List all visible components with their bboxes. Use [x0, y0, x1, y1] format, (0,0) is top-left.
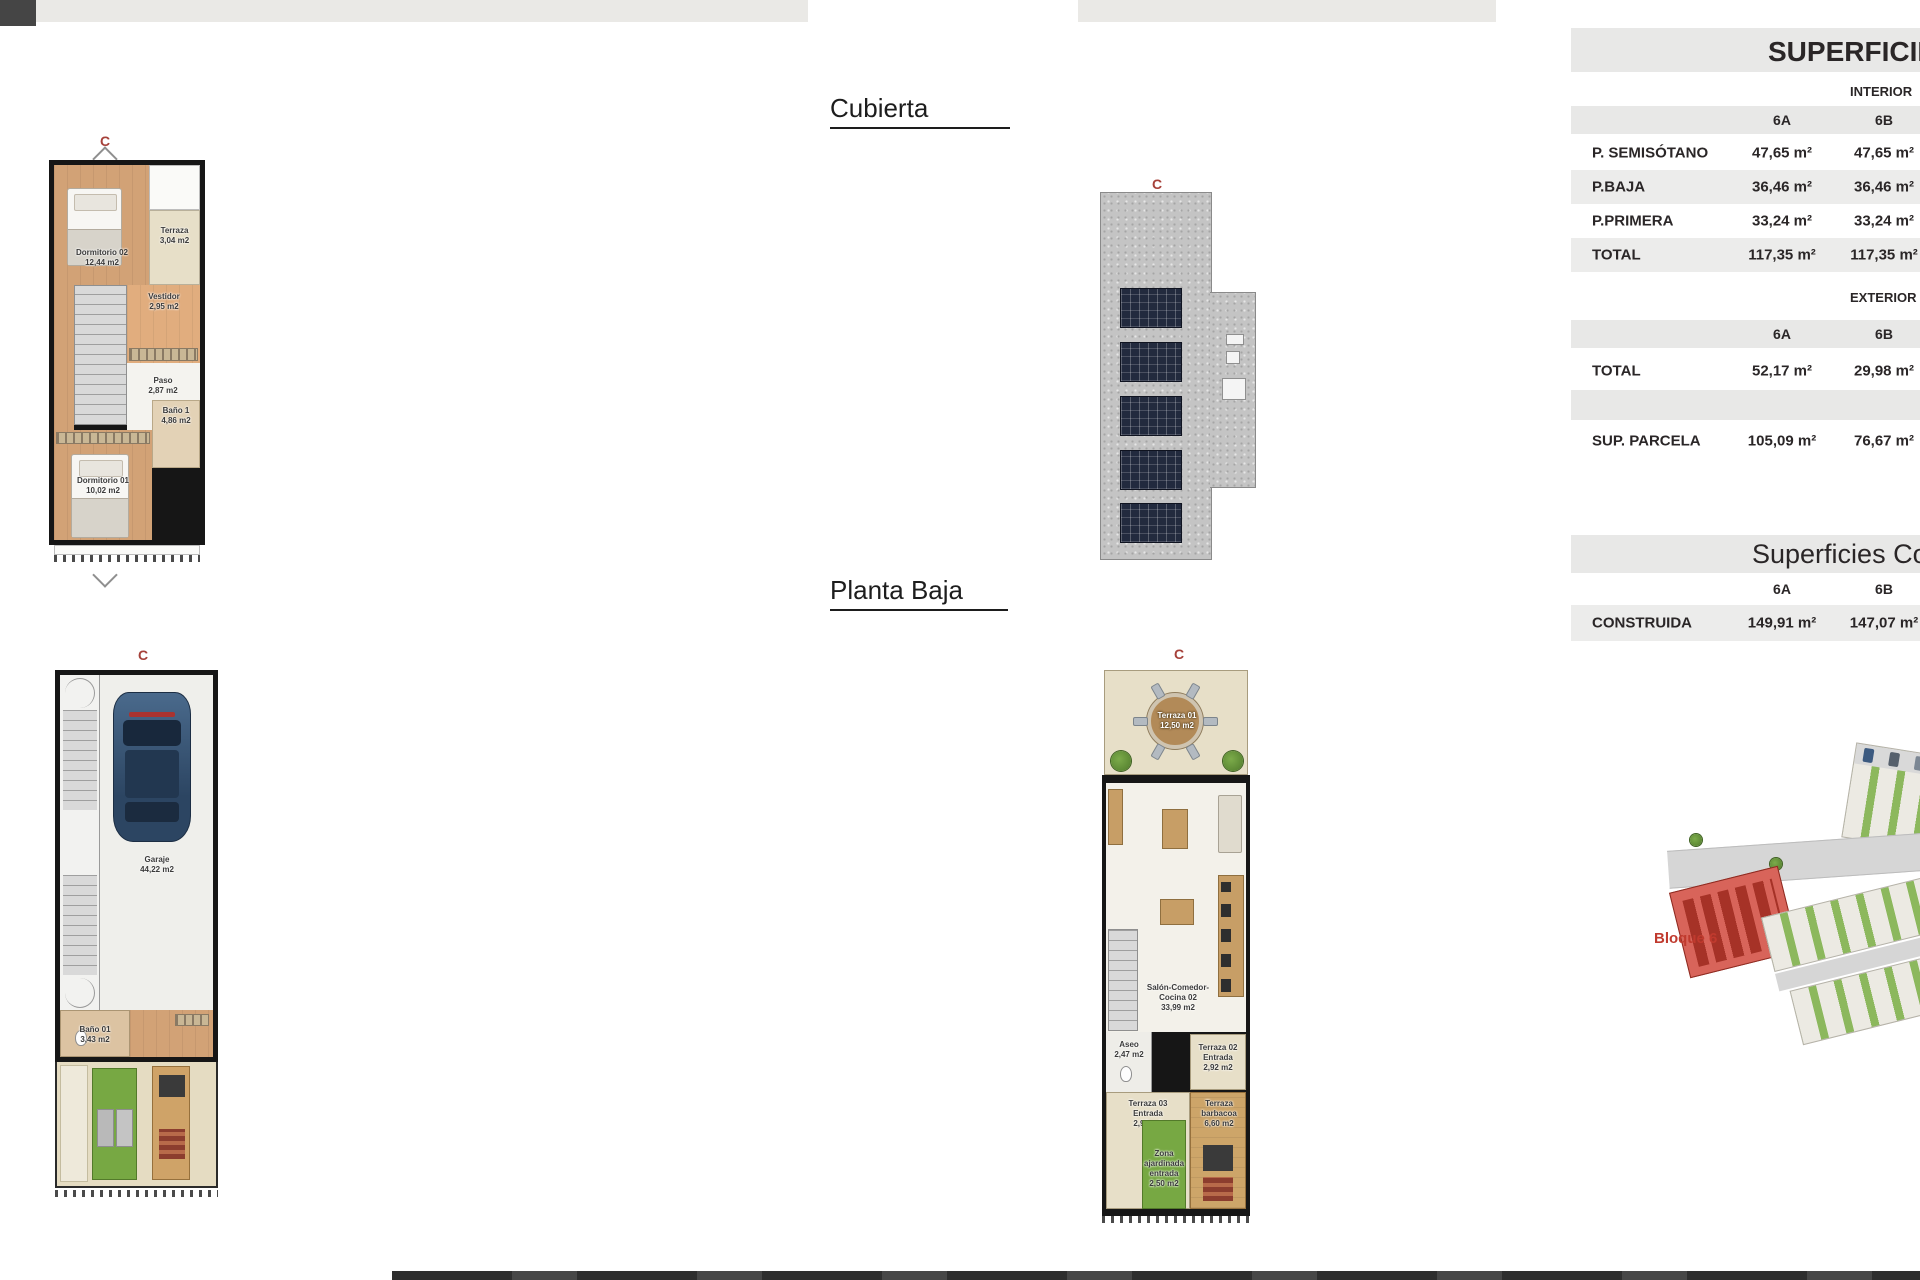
balcony-area [149, 165, 200, 210]
heading-planta-baja-rule [830, 609, 1008, 611]
roof-equipment [1222, 378, 1246, 400]
planter-graphic [1203, 1177, 1233, 1201]
room-name: Terraza 02 Entrada [1193, 1043, 1243, 1063]
column-header-6b: 6B [1875, 112, 1893, 128]
car-graphic [113, 692, 191, 842]
car-windshield [125, 802, 179, 822]
room-name: Zona ajardinada entrada [1144, 1149, 1184, 1179]
spacer-band [1571, 390, 1920, 420]
stairs-graphic [1108, 929, 1138, 1031]
superficies-title-band: SUPERFICIES [1571, 28, 1920, 72]
column-header-6a: 6A [1773, 326, 1791, 342]
construidas-title: Superficies Co [1752, 539, 1920, 570]
road [1667, 829, 1920, 889]
hatched-edge [55, 1190, 218, 1197]
column-header-6a: 6A [1773, 581, 1791, 597]
room-label: Terraza 01 12,50 m2 [1145, 711, 1209, 731]
room-name: Paso [129, 376, 197, 386]
value-6a: 47,65 m² [1752, 145, 1812, 162]
room-label: Vestidor 2,95 m2 [131, 292, 197, 312]
roof-equipment [1226, 351, 1240, 364]
floorplan-planta-baja: Terraza 01 12,50 m2 Salón-Comedor-Cocina… [1102, 668, 1250, 1223]
room-area: 2,95 m2 [131, 302, 197, 312]
room-area: 33,99 m2 [1140, 1003, 1216, 1013]
chair-graphic [1150, 743, 1165, 760]
bottom-edge-strip [392, 1271, 1920, 1280]
dining-table-graphic [1160, 899, 1194, 925]
room-label: Terraza barbacoa 6,60 m2 [1193, 1099, 1245, 1129]
floor-sliver [54, 285, 74, 430]
row-label: TOTAL [1592, 363, 1641, 380]
table-row: SUP. PARCELA 105,09 m² 76,67 m² [1571, 424, 1920, 458]
room-zona-ajardinada: Zona ajardinada entrada 2,50 m2 [1142, 1120, 1186, 1209]
bed-graphic [71, 454, 129, 538]
chair-graphic [1185, 743, 1200, 760]
value-6b: 76,67 m² [1854, 433, 1914, 450]
grass-patch [92, 1068, 137, 1180]
top-edge-strip-left [0, 0, 808, 22]
room-terraza-barbacoa: Terraza barbacoa 6,60 m2 [1190, 1092, 1246, 1209]
row-label: P. SEMISÓTANO [1592, 145, 1708, 162]
value-6b: 33,24 m² [1854, 213, 1914, 230]
kitchen-counter-graphic [1218, 875, 1244, 997]
heading-cubierta-rule [830, 127, 1010, 129]
plans-sheet-page: Cubierta Planta Baja C Terraza 3,04 m2 D… [0, 0, 1920, 1280]
paver-slab [97, 1109, 114, 1147]
grill-graphic [1203, 1145, 1233, 1171]
room-name: Terraza barbacoa [1193, 1099, 1245, 1119]
stairs-graphic [74, 285, 127, 425]
room-area: 2,92 m2 [1193, 1063, 1243, 1073]
room-area: 6,60 m2 [1193, 1119, 1245, 1129]
interior-section-label: INTERIOR [1850, 84, 1920, 99]
stairs-graphic [63, 875, 97, 975]
room-name: Terraza 01 [1145, 711, 1209, 721]
row-label: P.PRIMERA [1592, 213, 1673, 230]
room-area: 3,43 m2 [63, 1035, 127, 1045]
room-name: Garaje [105, 855, 209, 865]
table-row: P. SEMISÓTANO 47,65 m² 47,65 m² [1571, 136, 1920, 170]
floorplan-semisotano: Garaje 44,22 m2 Baño 01 3,43 m2 [55, 670, 218, 1202]
row-label: SUP. PARCELA [1592, 433, 1701, 450]
column-header-6a: 6A [1773, 112, 1791, 128]
paver-slab [116, 1109, 133, 1147]
stairs-graphic [63, 710, 97, 810]
cabinet-graphic [175, 1014, 209, 1026]
car-graphic [1914, 756, 1920, 771]
siteplan: Bloque 6 [1650, 750, 1920, 1040]
plant-graphic [1111, 751, 1131, 771]
room-name: Baño 01 [63, 1025, 127, 1035]
room-terraza-02: Terraza 02 Entrada 2,92 m2 [1190, 1034, 1246, 1090]
chair-graphic [1150, 682, 1165, 699]
planter-graphic [159, 1129, 185, 1159]
tv-unit-graphic [1108, 789, 1123, 845]
solar-panel [1120, 396, 1182, 436]
room-aseo: Aseo 2,47 m2 [1106, 1032, 1152, 1092]
exterior-section-label: EXTERIOR [1850, 290, 1920, 305]
column-header-6b: 6B [1875, 326, 1893, 342]
room-name: Baño 1 [153, 406, 199, 416]
car-brake-light [129, 712, 175, 717]
room-area: 44,22 m2 [105, 865, 209, 875]
room-label: Paso 2,87 m2 [129, 376, 197, 396]
value-6a: 36,46 m² [1752, 179, 1812, 196]
exterior-header-band: 6A 6B [1571, 320, 1920, 348]
bloque-6-label: Bloque 6 [1654, 930, 1717, 947]
room-label: Aseo 2,47 m2 [1108, 1040, 1150, 1060]
value-6a: 105,09 m² [1748, 433, 1816, 450]
garden-deck [152, 1066, 190, 1180]
room-area: 2,50 m2 [1144, 1179, 1184, 1189]
plan-semisotano-marker: C [138, 647, 148, 663]
car-rear-window [123, 720, 181, 746]
table-row: P.BAJA 36,46 m² 36,46 m² [1571, 170, 1920, 204]
top-left-corner-mark [0, 0, 36, 26]
room-name: Terraza [149, 226, 200, 236]
chair-graphic [1185, 682, 1200, 699]
solar-panel [1120, 342, 1182, 382]
value-6b: 117,35 m² [1850, 247, 1918, 264]
room-label: Dormitorio 01 10,02 m2 [57, 476, 149, 496]
table-row: CONSTRUIDA 149,91 m² 147,07 m² [1571, 605, 1920, 641]
sofa-graphic [1218, 795, 1242, 853]
plan-cubierta-marker: C [1152, 176, 1162, 192]
value-6b: 36,46 m² [1854, 179, 1914, 196]
room-name: Dormitorio 02 [57, 248, 147, 258]
value-6a: 33,24 m² [1752, 213, 1812, 230]
coffee-table-graphic [1162, 809, 1188, 849]
wardrobe-graphic [129, 348, 198, 361]
room-label: Baño 01 3,43 m2 [63, 1025, 127, 1045]
construidas-title-band: Superficies Co [1571, 535, 1920, 573]
toilet-graphic [1120, 1066, 1132, 1082]
table-row: TOTAL 117,35 m² 117,35 m² [1571, 238, 1920, 272]
car-graphic [1862, 748, 1874, 763]
column-header-6b: 6B [1875, 581, 1893, 597]
room-salon-comedor-cocina: Salón-Comedor-Cocina 02 33,99 m2 [1106, 783, 1246, 1032]
value-6b: 29,98 m² [1854, 363, 1914, 380]
room-terraza [149, 210, 200, 285]
room-label: Salón-Comedor-Cocina 02 33,99 m2 [1140, 983, 1216, 1013]
room-label: Garaje 44,22 m2 [105, 855, 209, 875]
room-terraza-01: Terraza 01 12,50 m2 [1104, 670, 1248, 775]
solar-panel [1120, 450, 1182, 490]
solar-panel [1120, 288, 1182, 328]
superficies-table: SUPERFICIES INTERIOR 6A 6B P. SEMISÓTANO… [1571, 28, 1920, 460]
room-name: Aseo [1108, 1040, 1150, 1050]
interior-header-band: 6A 6B [1571, 106, 1920, 134]
heading-planta-baja: Planta Baja [830, 575, 963, 606]
value-6b: 147,07 m² [1850, 615, 1918, 632]
grill-graphic [159, 1075, 185, 1097]
heading-cubierta: Cubierta [830, 93, 928, 124]
garden-terrace [55, 1062, 218, 1188]
hatched-edge [1102, 1216, 1250, 1223]
room-area: 2,47 m2 [1108, 1050, 1150, 1060]
lower-balcony [54, 545, 200, 555]
row-label: CONSTRUIDA [1592, 615, 1692, 632]
row-label: TOTAL [1592, 247, 1641, 264]
construidas-header-row: 6A 6B [1571, 573, 1920, 605]
roofplan-cubierta [1100, 192, 1258, 560]
room-label: Terraza 3,04 m2 [149, 226, 200, 246]
table-row: TOTAL 52,17 m² 29,98 m² [1571, 354, 1920, 388]
hatched-edge [54, 555, 200, 562]
room-name: Terraza 03 Entrada [1115, 1099, 1181, 1119]
floorplan-planta-primera: Terraza 3,04 m2 Dormitorio 02 12,44 m2 V… [49, 160, 205, 562]
room-name: Dormitorio 01 [57, 476, 149, 486]
table-row: P.PRIMERA 33,24 m² 33,24 m² [1571, 204, 1920, 238]
tree-graphic [1690, 834, 1702, 846]
value-6b: 47,65 m² [1854, 145, 1914, 162]
room-area: 12,44 m2 [57, 258, 147, 268]
room-label: Zona ajardinada entrada 2,50 m2 [1144, 1149, 1184, 1189]
plant-graphic [1223, 751, 1243, 771]
chevron-down-icon [92, 562, 117, 587]
superficies-title: SUPERFICIES [1768, 36, 1920, 68]
wardrobe-graphic [56, 432, 150, 444]
value-6a: 149,91 m² [1748, 615, 1816, 632]
value-6a: 52,17 m² [1752, 363, 1812, 380]
room-area: 10,02 m2 [57, 486, 149, 496]
room-name: Vestidor [131, 292, 197, 302]
plan-baja-marker: C [1174, 646, 1184, 662]
top-edge-strip-right [1078, 0, 1496, 22]
room-label: Dormitorio 02 12,44 m2 [57, 248, 147, 268]
room-label: Baño 1 4,86 m2 [153, 406, 199, 426]
car-roof [125, 750, 179, 798]
construidas-table: Superficies Co 6A 6B CONSTRUIDA 149,91 m… [1571, 535, 1920, 645]
door-arc [65, 978, 95, 1008]
room-name: Salón-Comedor-Cocina 02 [1140, 983, 1216, 1003]
value-6a: 117,35 m² [1748, 247, 1816, 264]
door-arc [65, 678, 95, 708]
appliances-graphic [1221, 882, 1231, 992]
room-label: Terraza 02 Entrada 2,92 m2 [1193, 1043, 1243, 1073]
room-area: 2,87 m2 [129, 386, 197, 396]
solar-panel [1120, 503, 1182, 543]
row-label: P.BAJA [1592, 179, 1645, 196]
room-area: 4,86 m2 [153, 416, 199, 426]
room-area: 3,04 m2 [149, 236, 200, 246]
garden-path [60, 1065, 88, 1182]
roof-equipment [1226, 334, 1244, 345]
room-area: 12,50 m2 [1145, 721, 1209, 731]
